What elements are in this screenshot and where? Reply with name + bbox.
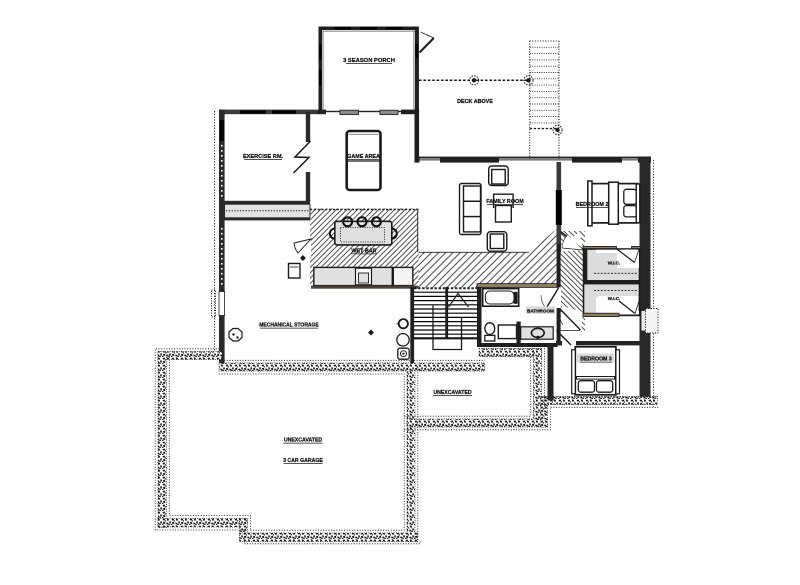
- svg-text:FAMILY ROOM: FAMILY ROOM: [486, 199, 524, 205]
- svg-text:WET BAR: WET BAR: [351, 248, 376, 254]
- svg-text:3 CAR GARAGE: 3 CAR GARAGE: [283, 458, 323, 464]
- svg-text:W.I.C.: W.I.C.: [608, 261, 621, 266]
- svg-text:BEDROOM 3: BEDROOM 3: [580, 357, 612, 363]
- svg-text:BATHROOM: BATHROOM: [527, 308, 554, 313]
- svg-text:3 SEASON PORCH: 3 SEASON PORCH: [343, 58, 395, 64]
- svg-text:EXERCISE RM.: EXERCISE RM.: [243, 154, 284, 160]
- svg-text:UNEXCAVATED: UNEXCAVATED: [284, 438, 323, 444]
- svg-text:UNEXCAVATED: UNEXCAVATED: [433, 390, 472, 396]
- svg-text:GAME AREA: GAME AREA: [347, 154, 380, 160]
- svg-text:W.I.C.: W.I.C.: [608, 296, 621, 301]
- svg-text:BEDROOM 2: BEDROOM 2: [576, 202, 609, 208]
- svg-text:DECK ABOVE: DECK ABOVE: [457, 99, 493, 105]
- svg-text:MECHANICAL STORAGE: MECHANICAL STORAGE: [259, 323, 319, 329]
